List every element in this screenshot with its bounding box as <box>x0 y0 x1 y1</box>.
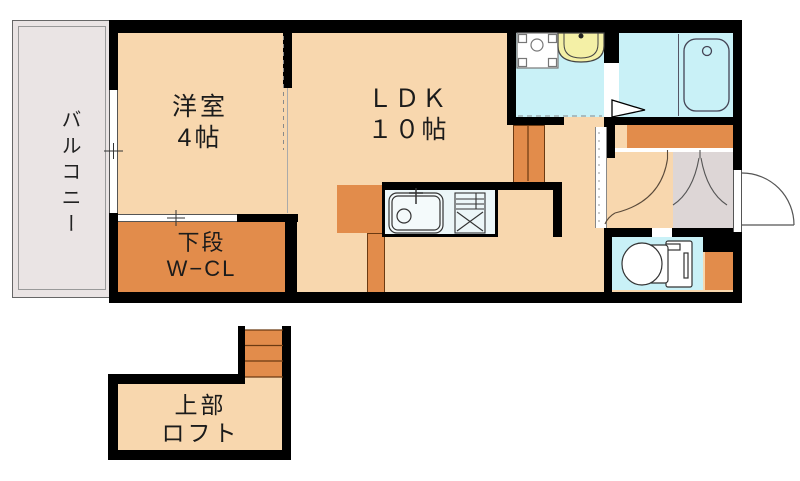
toilet-side-storage <box>705 252 733 290</box>
room-size: １０帖 <box>348 115 468 146</box>
western-room-label: 洋室 4帖 <box>140 92 260 153</box>
loft-stairs <box>245 330 283 377</box>
wall-segment <box>108 450 291 460</box>
wall-segment <box>507 33 516 125</box>
kitchen-counter-strip <box>367 233 385 294</box>
wall-segment <box>109 20 742 33</box>
wall-segment <box>604 117 742 125</box>
hall-sliding-door-icon <box>595 127 607 228</box>
ldk-label: ＬＤＫ １０帖 <box>348 84 468 145</box>
door-swing-icon <box>742 173 794 225</box>
room-size: 4帖 <box>140 123 260 154</box>
wall-segment <box>109 213 118 303</box>
bathroom-door-opening <box>604 63 619 117</box>
room-name: 下段 <box>118 230 285 256</box>
wall-segment <box>604 33 619 63</box>
loft-label: 上部 ロフト <box>128 391 273 447</box>
toilet-door-opening <box>652 228 672 237</box>
wall-segment <box>604 237 612 292</box>
wall-segment <box>703 237 742 252</box>
toilet-room <box>612 237 703 290</box>
room-name: 洋室 <box>140 92 260 123</box>
wall-segment <box>109 292 742 303</box>
refrigerator-space <box>337 185 382 233</box>
bathroom <box>619 33 733 117</box>
window-icon <box>109 90 118 213</box>
wall-segment <box>553 190 562 237</box>
wall-segment <box>604 228 742 237</box>
washroom <box>516 33 607 117</box>
wall-segment <box>238 326 245 377</box>
wall-segment <box>382 182 562 190</box>
loft-ladder <box>513 125 545 184</box>
wall-segment <box>108 374 118 460</box>
wall-segment <box>285 214 297 302</box>
balcony-label: バルコニー <box>40 94 84 254</box>
entrance <box>673 152 733 228</box>
room-name: 上部 <box>128 391 273 419</box>
room-sublabel: W−CL <box>118 256 285 282</box>
wall-segment <box>109 33 118 90</box>
kitchen-counter <box>382 188 498 237</box>
closet-label: 下段 W−CL <box>118 230 285 283</box>
hall-storage-strip <box>627 125 733 149</box>
wall-segment <box>507 117 564 125</box>
wall-segment <box>108 374 245 384</box>
wall-segment <box>282 326 291 460</box>
wall-segment <box>283 33 292 88</box>
entrance-door-opening <box>733 170 742 232</box>
wall-segment <box>733 33 742 172</box>
room-name: ＬＤＫ <box>348 84 468 115</box>
sliding-door-icon <box>118 214 237 222</box>
floor-plan: バルコニー 洋室 4帖 ＬＤＫ １０帖 下段 W−CL 上部 ロフト <box>0 0 800 481</box>
room-sublabel: ロフト <box>128 419 273 447</box>
